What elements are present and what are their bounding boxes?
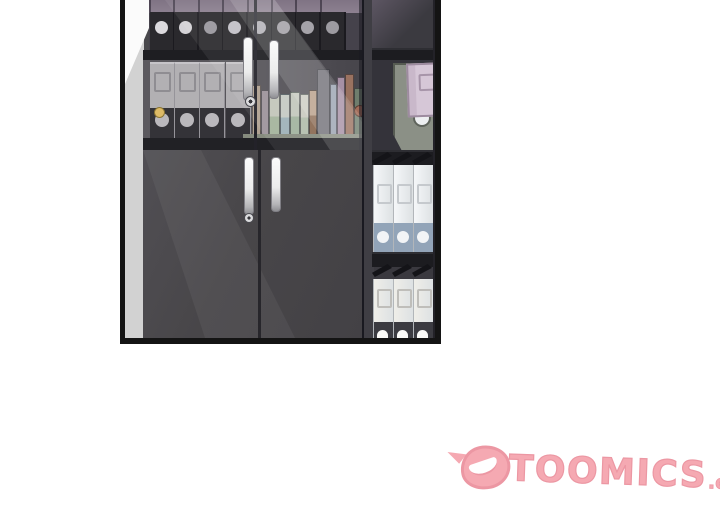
binder-hole [397,330,408,338]
white-binder [393,165,413,252]
white-binder [393,279,413,338]
watermark-brand-text: TOOMICS [508,451,708,500]
side-compartment-filebox [372,60,433,150]
lavender-binder-label [418,74,433,92]
knob-left [154,107,165,118]
binder-flap [412,264,432,277]
binder-band [394,322,413,338]
toomics-logo-icon [452,440,510,491]
binder-label [417,184,432,204]
binder-flap [372,264,392,277]
door-handle-left [244,157,254,215]
white-binders-lower [372,252,433,338]
door-keyhole [244,213,254,223]
white-binders-upper [372,150,433,252]
binder-label [397,289,412,308]
binder-label [377,184,392,204]
binder-hole [377,231,389,243]
binder-hole [397,231,409,243]
watermark-suffix-text: .com [707,473,720,502]
binder-hole [417,231,429,243]
binder-band [414,223,433,252]
binder-band [374,223,393,252]
binder-band [414,322,433,338]
white-binder [373,165,393,252]
binder-hole [377,330,388,338]
binder-hole [417,330,428,338]
glass-door-keyhole [245,96,256,107]
binder-flap [392,152,412,165]
toomics-watermark: TOOMICS .com [455,431,720,500]
binder-label [397,184,412,204]
binder-flap [392,264,412,277]
glass-door-handle-right [269,40,279,99]
white-binder [413,165,433,252]
binder-band [374,322,393,338]
binder-flap [372,152,392,165]
binder-flap [412,152,432,165]
glass-door-handle-left [243,37,253,101]
side-shelf-unit [362,0,435,338]
side-top-compartment [372,0,433,48]
lavender-binder [406,62,433,117]
white-binder [373,279,393,338]
white-binder [413,279,433,338]
comic-panel [120,0,441,344]
side-panel-edge [433,0,435,338]
binder-label [417,289,432,308]
door-divider [258,150,261,338]
binder-band [394,223,413,252]
binder-label [377,289,392,308]
door-handle-right [271,157,281,212]
